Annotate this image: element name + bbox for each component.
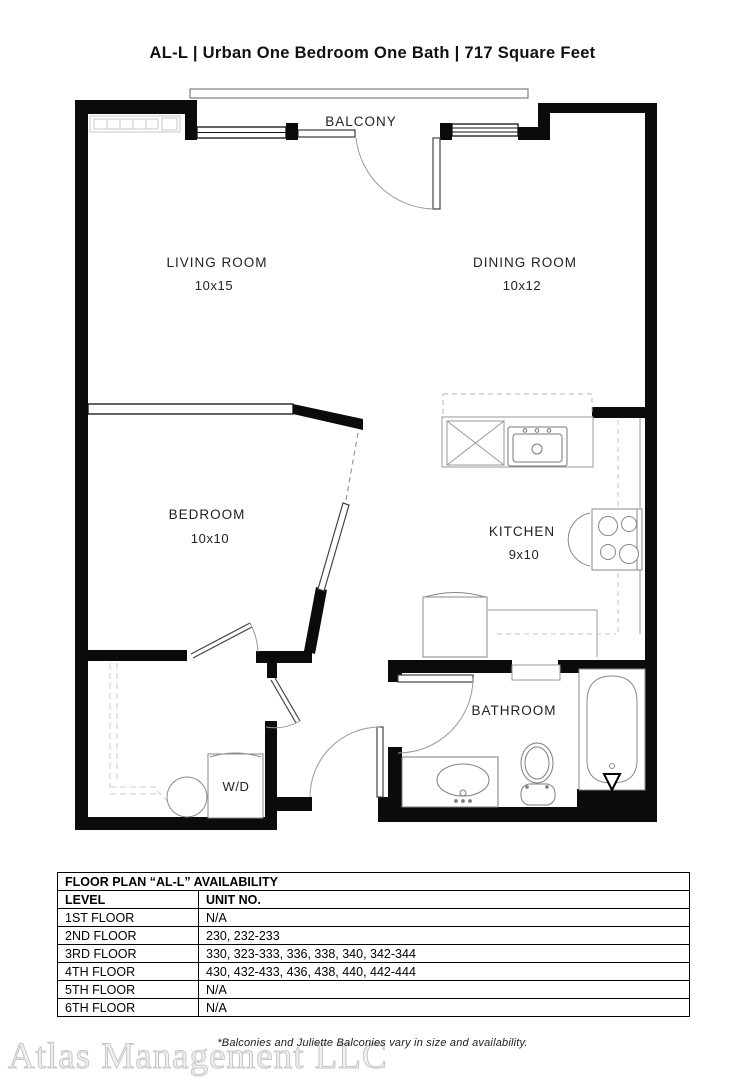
balcony-label: BALCONY — [325, 114, 397, 129]
kitchen-upper-cabinets — [443, 394, 592, 417]
wall-bath-top-left — [388, 660, 512, 673]
refrigerator — [423, 593, 487, 658]
wall-top-left-step — [185, 114, 197, 140]
units-cell: 430, 432-433, 436, 438, 440, 442-444 — [199, 963, 690, 981]
entry-door-swing — [310, 727, 380, 797]
entry-door-leaf — [377, 727, 383, 797]
table-row: 3RD FLOOR 330, 323-333, 336, 338, 340, 3… — [58, 945, 690, 963]
wall-hall-step — [267, 663, 277, 678]
wall-angled-bottom — [304, 587, 327, 654]
dining-window — [452, 124, 518, 136]
units-cell: N/A — [199, 981, 690, 999]
wall-dining-kitchen — [592, 407, 645, 418]
sliding-door-panel — [318, 503, 349, 591]
bath-shelf — [512, 665, 560, 680]
bedroom-door-leaf2 — [193, 627, 252, 658]
level-cell: 5TH FLOOR — [58, 981, 199, 999]
bedroom-dims: 10x10 — [191, 531, 229, 546]
kitchen-label: KITCHEN — [489, 524, 555, 539]
wall-post-b — [440, 123, 452, 140]
table-title: FLOOR PLAN “AL-L” AVAILABILITY — [58, 873, 690, 891]
wall-top-right — [538, 103, 657, 113]
bathroom-door-swing — [398, 678, 473, 753]
units-cell: 230, 232-233 — [199, 927, 690, 945]
toilet — [521, 743, 555, 805]
balcony-door-swing — [356, 138, 433, 209]
kitchen-dims: 9x10 — [509, 547, 540, 562]
living-room-dims: 10x15 — [195, 278, 233, 293]
wall-right — [645, 103, 657, 822]
windows — [88, 124, 518, 414]
bathtub — [579, 669, 645, 790]
wall-top-left — [75, 100, 197, 114]
wall-closet-right — [265, 721, 277, 818]
balcony-thin-wall — [298, 130, 355, 137]
col-header-units: UNIT NO. — [199, 891, 690, 909]
wall-post-a — [286, 123, 298, 140]
table-row: 1ST FLOOR N/A — [58, 909, 690, 927]
level-cell: 1ST FLOOR — [58, 909, 199, 927]
wall-bath-bottom — [390, 807, 657, 822]
balcony-railing — [190, 89, 528, 98]
wall-angled-top — [293, 404, 363, 430]
bathroom-fixtures — [402, 665, 645, 807]
table-row: 2ND FLOOR 230, 232-233 — [58, 927, 690, 945]
closet-door-leaf — [275, 678, 300, 721]
laundry-closet — [110, 663, 263, 818]
units-cell: N/A — [199, 999, 690, 1017]
footnote: *Balconies and Juliette Balconies vary i… — [0, 1037, 745, 1049]
wall-tub-bottom — [577, 789, 657, 808]
table-header-row: LEVEL UNIT NO. — [58, 891, 690, 909]
level-cell: 2ND FLOOR — [58, 927, 199, 945]
vanity-sink — [402, 757, 498, 807]
dining-room-dims: 10x12 — [503, 278, 541, 293]
level-cell: 6TH FLOOR — [58, 999, 199, 1017]
sliding-door-track — [346, 433, 358, 500]
table-row: 5TH FLOOR N/A — [58, 981, 690, 999]
water-heater — [167, 777, 207, 817]
floor-plan: BALCONY LIVING ROOM 10x15 DINING ROOM 10… — [0, 0, 745, 860]
wall-top-right-step-h — [518, 127, 550, 140]
wall-entry-left — [277, 797, 312, 811]
baseboard-heater — [90, 116, 180, 132]
table-row: 4TH FLOOR 430, 432-433, 436, 438, 440, 4… — [58, 963, 690, 981]
dining-room-label: DINING ROOM — [473, 255, 577, 270]
washer-dryer-label: W/D — [222, 779, 249, 794]
availability-table: FLOOR PLAN “AL-L” AVAILABILITY LEVEL UNI… — [57, 872, 690, 1017]
stove — [568, 509, 642, 570]
kitchen-sink — [508, 427, 567, 466]
living-room-label: LIVING ROOM — [166, 255, 267, 270]
table-row: 6TH FLOOR N/A — [58, 999, 690, 1017]
table-title-row: FLOOR PLAN “AL-L” AVAILABILITY — [58, 873, 690, 891]
bathroom-label: BATHROOM — [472, 703, 557, 718]
wall-left — [75, 100, 88, 830]
wall-bedroom-bottom — [88, 650, 187, 661]
units-cell: 330, 323-333, 336, 338, 340, 342-344 — [199, 945, 690, 963]
doors — [191, 138, 473, 797]
col-header-level: LEVEL — [58, 891, 199, 909]
bedroom-label: BEDROOM — [169, 507, 246, 522]
kitchen-pantry-box — [447, 421, 504, 465]
closet-door-leaf2 — [271, 680, 296, 723]
level-cell: 4TH FLOOR — [58, 963, 199, 981]
bathroom-door-leaf — [398, 675, 473, 682]
living-bedroom-divider — [88, 404, 293, 414]
bedroom-door-leaf — [191, 623, 250, 654]
wall-hall-top — [256, 651, 312, 663]
balcony-door-leaf — [433, 138, 440, 209]
level-cell: 3RD FLOOR — [58, 945, 199, 963]
wall-bottom-left — [75, 817, 277, 830]
units-cell: N/A — [199, 909, 690, 927]
